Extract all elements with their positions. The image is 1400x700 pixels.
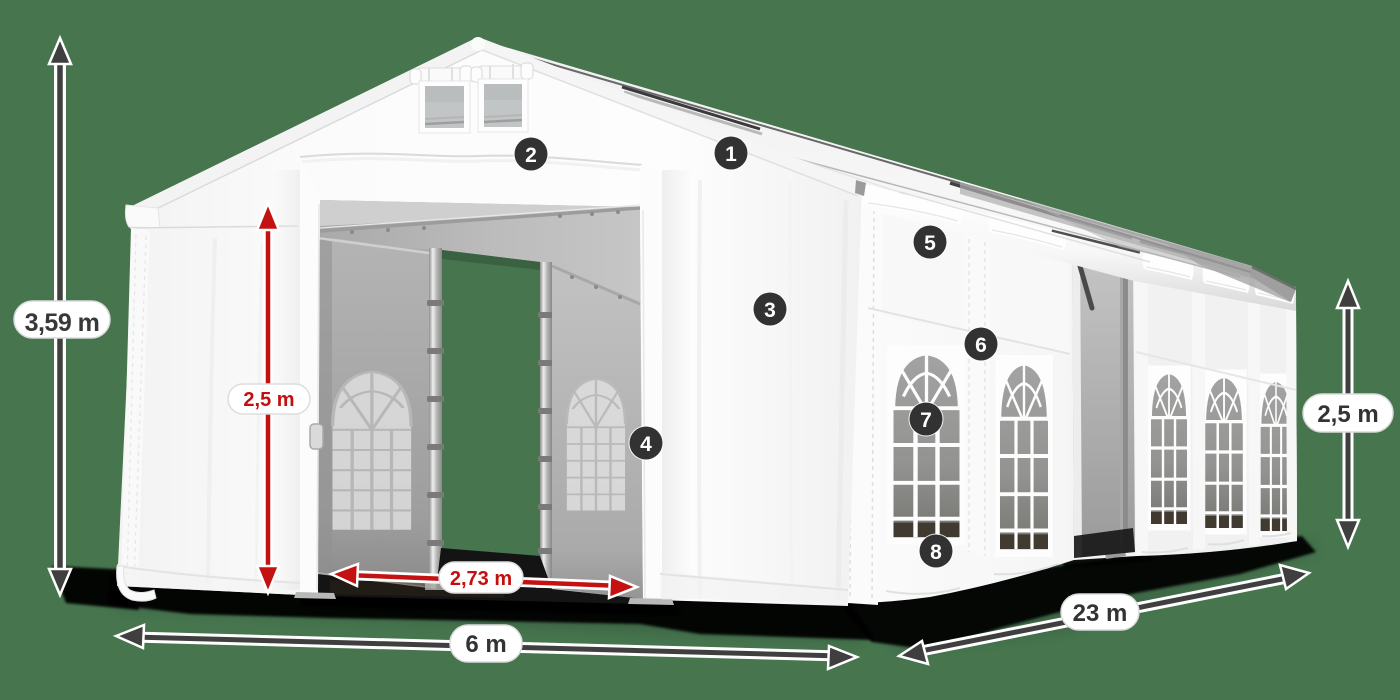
svg-text:5: 5 bbox=[924, 232, 936, 255]
svg-text:2,5 m: 2,5 m bbox=[1317, 401, 1378, 428]
svg-text:3: 3 bbox=[764, 299, 776, 322]
svg-text:6: 6 bbox=[975, 334, 987, 357]
svg-text:6 m: 6 m bbox=[465, 631, 506, 658]
svg-text:7: 7 bbox=[920, 409, 932, 432]
svg-text:1: 1 bbox=[725, 143, 737, 166]
svg-text:3,59 m: 3,59 m bbox=[25, 309, 100, 337]
svg-text:2,5 m: 2,5 m bbox=[243, 389, 294, 411]
svg-text:2,73 m: 2,73 m bbox=[450, 568, 512, 590]
svg-text:2: 2 bbox=[525, 144, 537, 167]
svg-text:4: 4 bbox=[640, 433, 652, 456]
svg-text:23 m: 23 m bbox=[1073, 600, 1128, 627]
svg-text:8: 8 bbox=[930, 541, 942, 564]
